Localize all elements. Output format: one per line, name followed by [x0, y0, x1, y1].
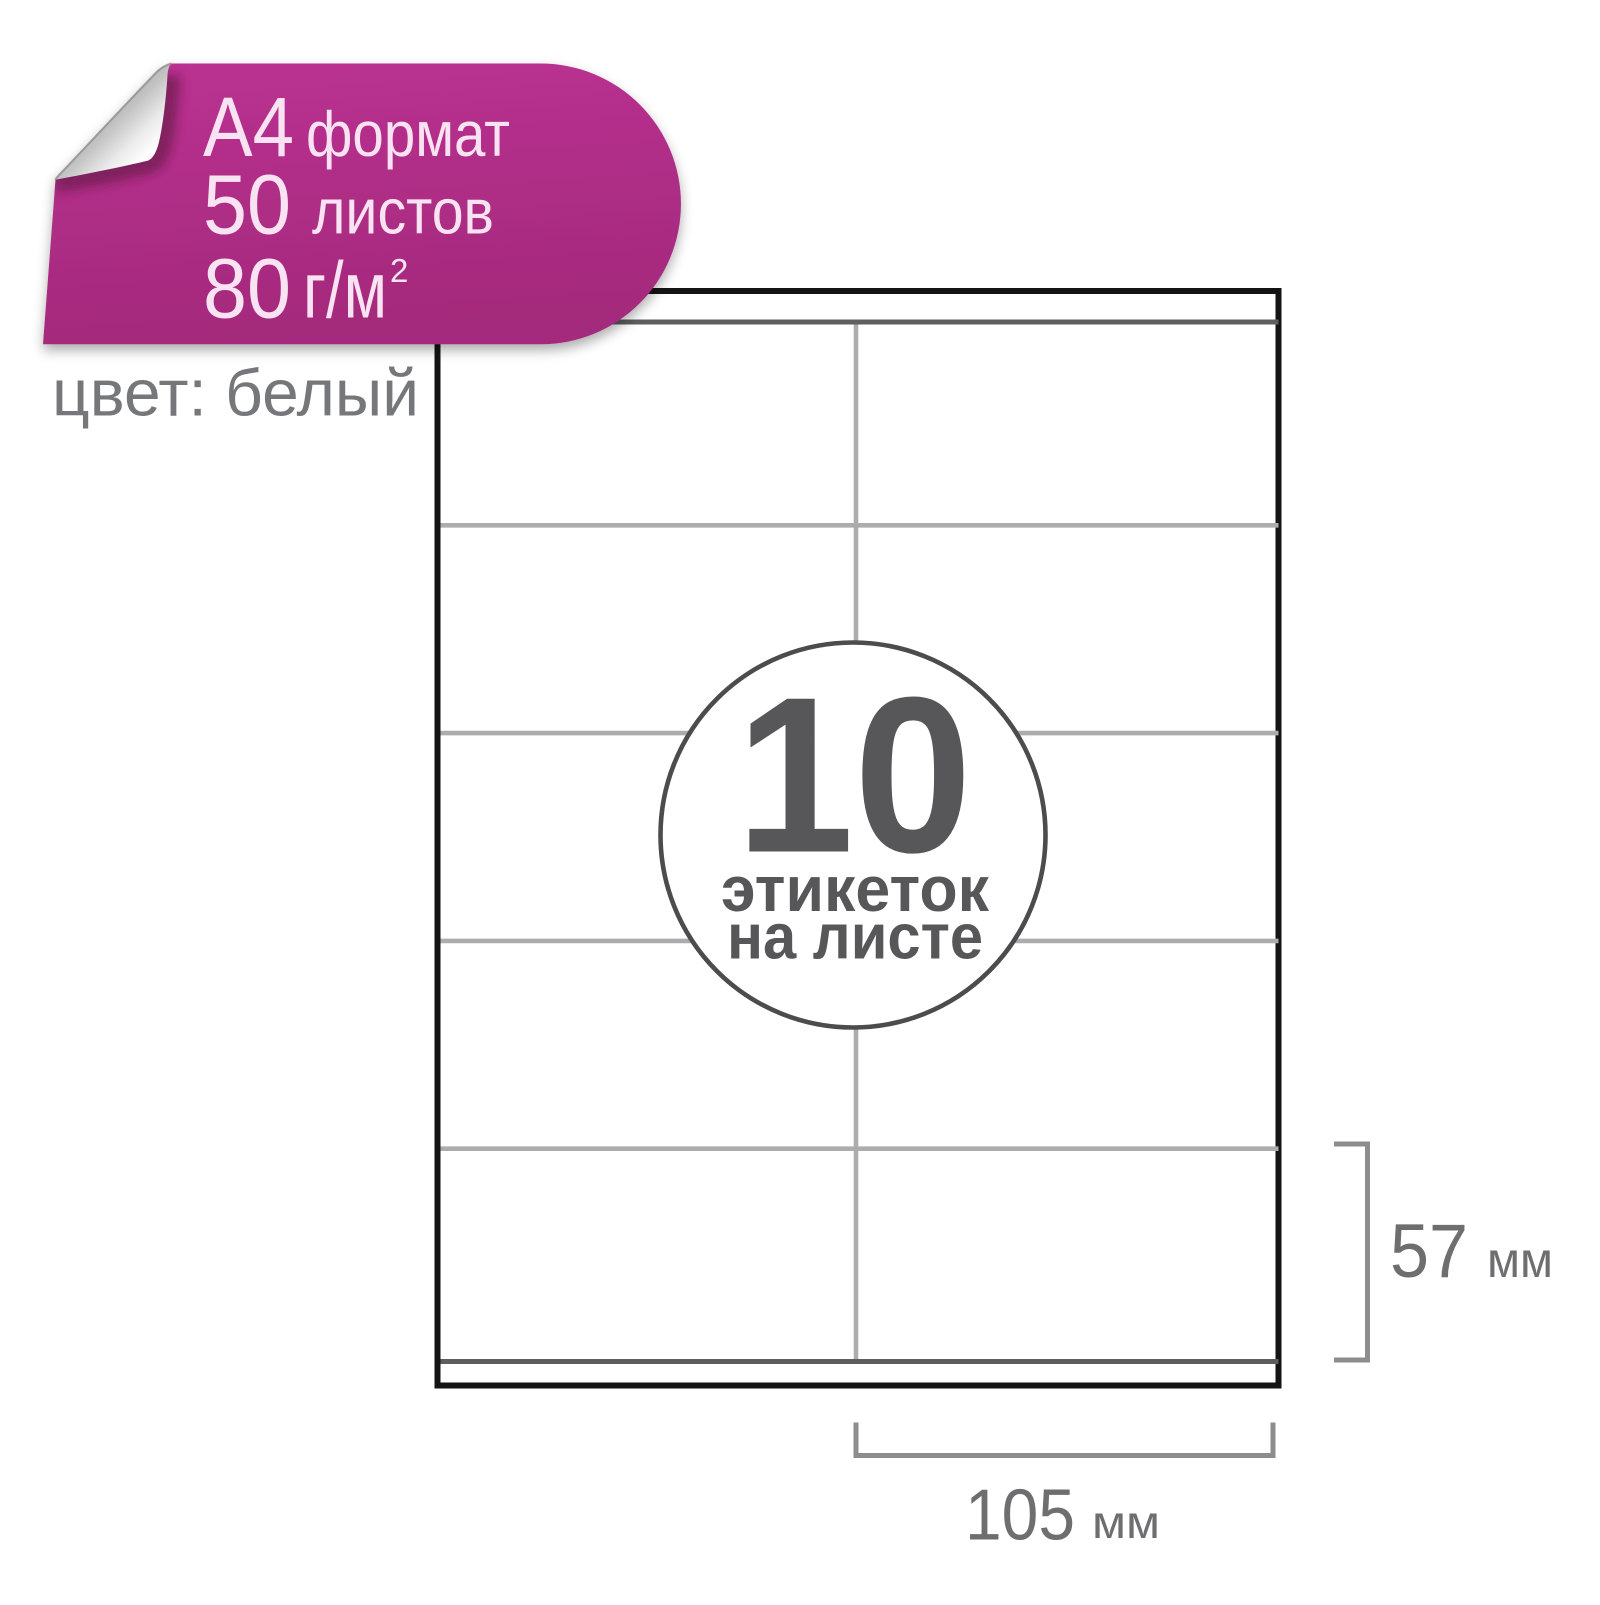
svg-text:50: 50	[203, 158, 291, 252]
svg-text:мм: мм	[1487, 1232, 1553, 1288]
svg-text:мм: мм	[1092, 1496, 1160, 1548]
svg-text:105: 105	[965, 1476, 1075, 1556]
svg-text:формат: формат	[306, 98, 510, 170]
svg-text:листов: листов	[312, 176, 494, 248]
svg-text:цвет: белый: цвет: белый	[52, 356, 419, 430]
svg-text:57: 57	[1390, 1209, 1468, 1294]
svg-text:2: 2	[390, 252, 408, 289]
svg-text:80: 80	[203, 242, 291, 336]
svg-text:г/м: г/м	[303, 246, 387, 335]
svg-text:на листе: на листе	[727, 901, 983, 973]
